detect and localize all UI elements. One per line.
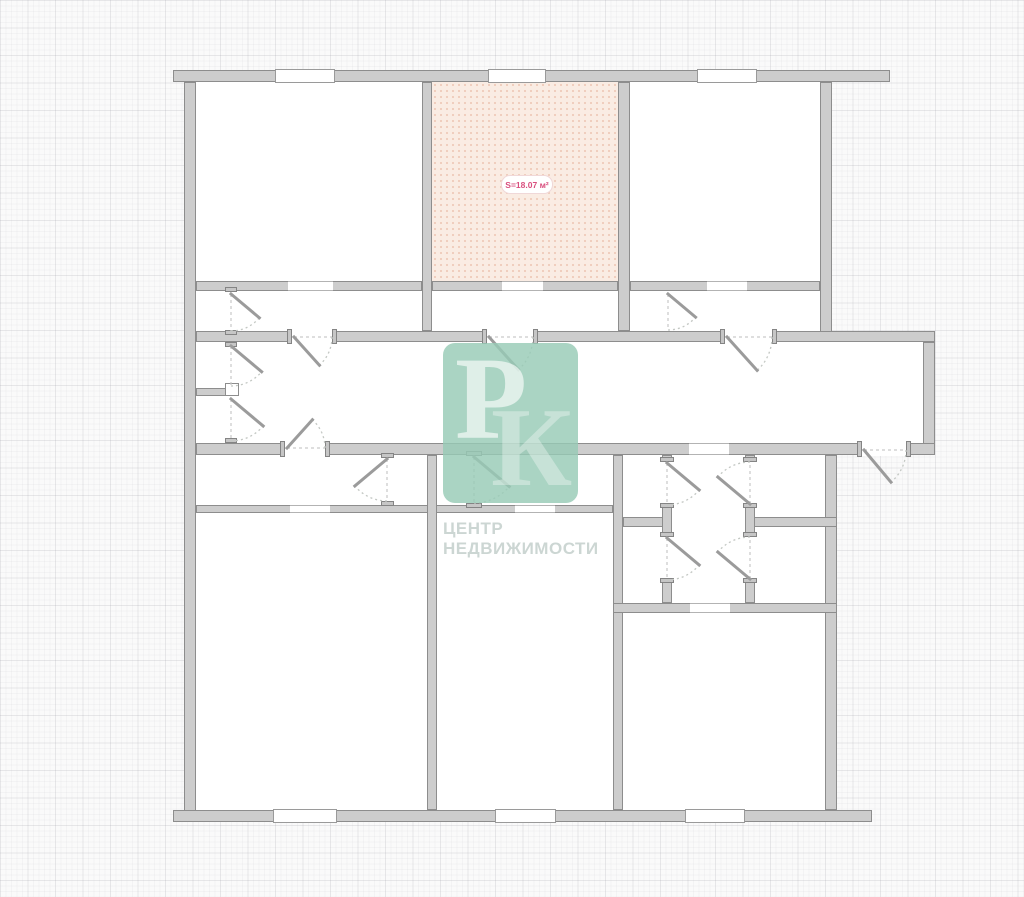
wall-opening xyxy=(690,603,730,613)
area-label-text: S=18.07 м² xyxy=(505,180,548,190)
wall xyxy=(745,517,837,527)
door-jamb xyxy=(225,330,237,335)
door-jamb xyxy=(381,501,394,506)
area-label: S=18.07 м² xyxy=(501,175,553,194)
watermark-logo: Р К xyxy=(443,343,578,503)
wall xyxy=(662,580,672,603)
wall-opening xyxy=(502,281,543,291)
wall-opening xyxy=(689,443,729,455)
door-gap xyxy=(292,330,332,343)
window xyxy=(685,809,745,823)
door-jamb xyxy=(660,578,674,583)
watermark-subtitle: ЦЕНТР НЕДВИЖИМОСТИ xyxy=(443,519,663,560)
watermark-letter-k: К xyxy=(491,401,572,496)
window xyxy=(275,69,335,83)
door-jamb xyxy=(325,441,330,457)
wall-cap xyxy=(225,383,239,396)
door-jamb xyxy=(660,503,674,508)
door-jamb xyxy=(743,457,757,462)
door-jamb xyxy=(381,453,394,458)
door-jamb xyxy=(660,457,674,462)
door-jamb xyxy=(280,441,285,457)
window xyxy=(697,69,757,83)
door-jamb xyxy=(743,532,757,537)
door-gap xyxy=(862,442,906,456)
wall xyxy=(745,580,755,603)
floor-plan: Р К ЦЕНТР НЕДВИЖИМОСТИ S=18.07 м² xyxy=(0,0,1024,897)
wall xyxy=(427,455,437,810)
door-jamb xyxy=(466,503,482,508)
wall-opening xyxy=(707,281,747,291)
window xyxy=(273,809,337,823)
watermark-subtitle-line2: НЕДВИЖИМОСТИ xyxy=(443,539,663,559)
wall xyxy=(923,342,935,455)
door-jamb xyxy=(332,329,337,344)
door-jamb xyxy=(533,329,538,344)
door-gap xyxy=(285,442,325,456)
window xyxy=(488,69,546,83)
door-jamb xyxy=(720,329,725,344)
door-jamb xyxy=(857,441,862,457)
wall xyxy=(618,82,630,331)
window xyxy=(495,809,556,823)
wall xyxy=(422,82,432,331)
wall-opening xyxy=(290,505,330,513)
door-jamb xyxy=(743,503,757,508)
door-jamb xyxy=(287,329,292,344)
door-jamb xyxy=(225,438,237,443)
door-jamb xyxy=(225,287,237,292)
door-jamb xyxy=(743,578,757,583)
watermark-subtitle-line1: ЦЕНТР xyxy=(443,519,663,539)
wall-opening xyxy=(288,281,333,291)
door-jamb xyxy=(772,329,777,344)
room xyxy=(832,331,935,455)
wall xyxy=(613,455,623,810)
door-gap xyxy=(725,330,772,343)
wall xyxy=(184,82,196,822)
wall xyxy=(820,82,832,341)
wall xyxy=(825,455,837,810)
door-jamb xyxy=(906,441,911,457)
door-jamb xyxy=(225,342,237,347)
